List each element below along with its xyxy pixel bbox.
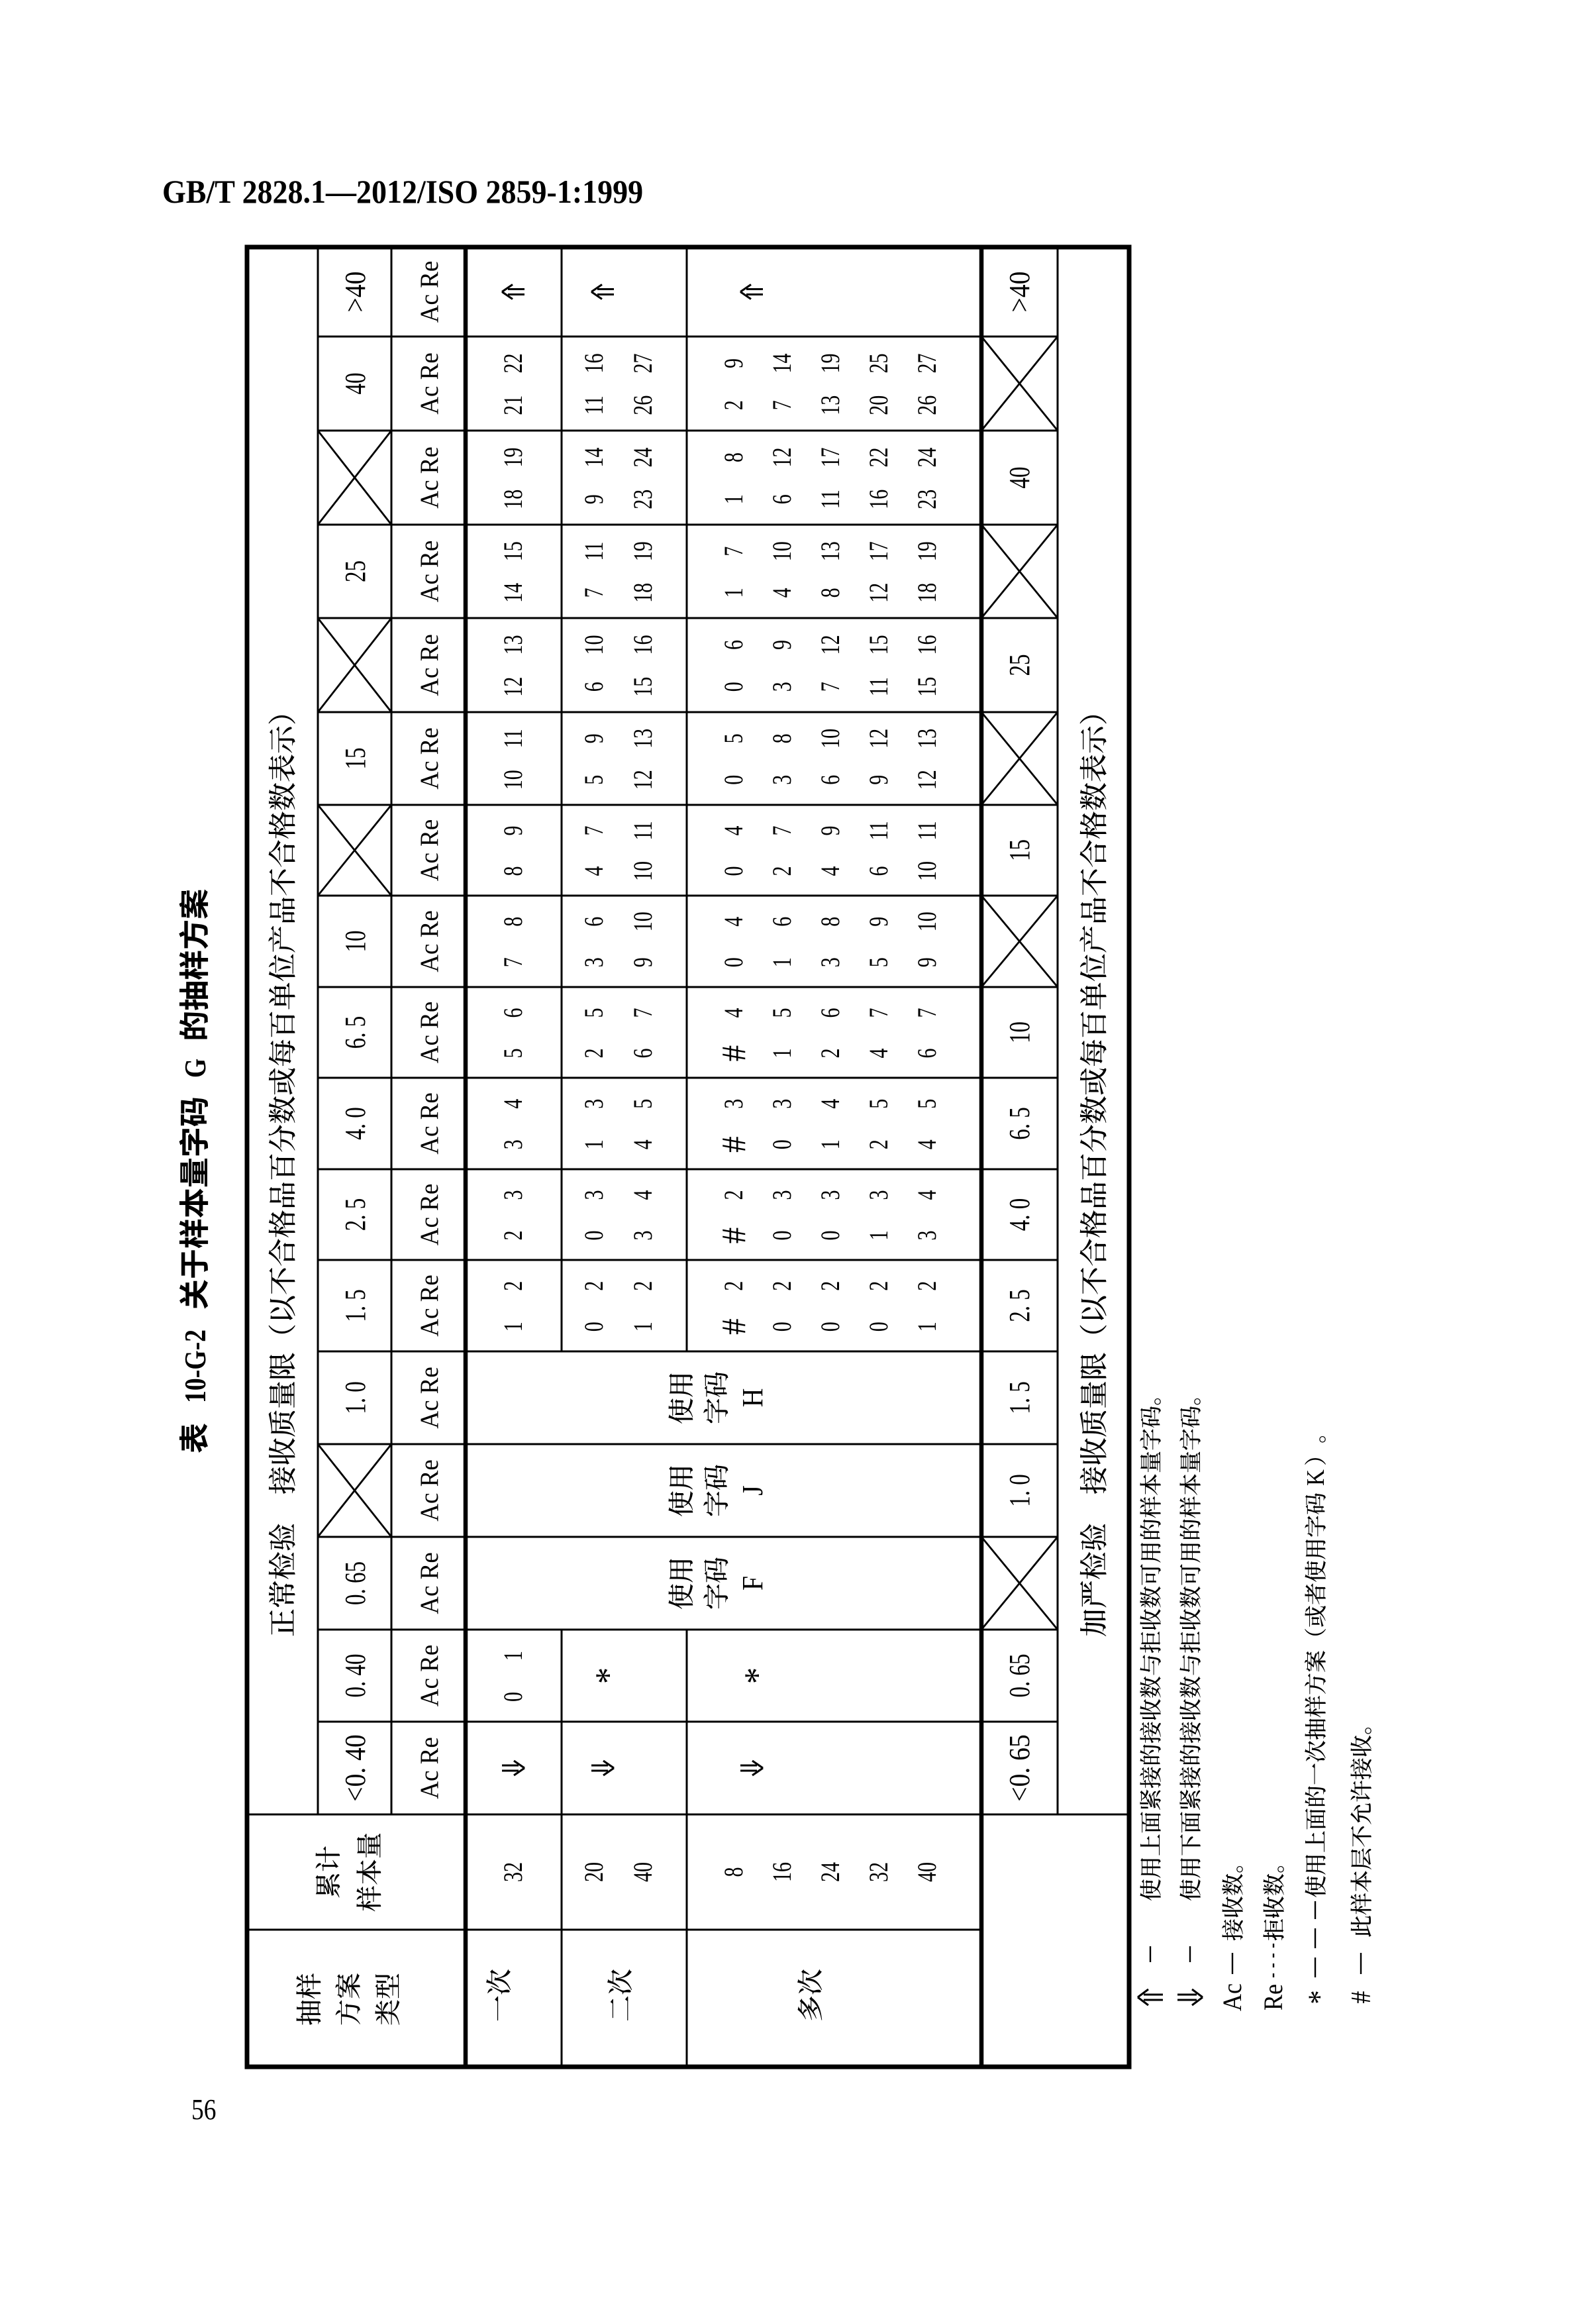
svg-text:#: # [715,1136,752,1153]
svg-text:9: 9 [498,826,528,836]
svg-text:2: 2 [767,1281,797,1291]
svg-text:11: 11 [815,490,845,509]
svg-text:12: 12 [912,770,942,790]
svg-text:15: 15 [864,635,893,655]
svg-text:25: 25 [1004,654,1036,676]
svg-text:Re: Re [1259,1984,1288,2011]
svg-text:32: 32 [498,1862,528,1882]
svg-text:8: 8 [815,588,845,598]
svg-text:11: 11 [864,821,893,841]
svg-text:19: 19 [498,448,528,468]
svg-text:7: 7 [498,957,528,967]
svg-text:0. 65: 0. 65 [340,1561,372,1605]
svg-text:18: 18 [628,583,658,603]
svg-text:6: 6 [767,917,797,927]
svg-text:17: 17 [815,448,845,468]
svg-text:24: 24 [628,447,658,467]
svg-text:18: 18 [498,490,528,509]
svg-text:3: 3 [815,957,845,967]
svg-text:Ac Re: Ac Re [415,261,444,323]
svg-text:11: 11 [579,542,609,561]
svg-text:2: 2 [719,1190,748,1200]
svg-text:1: 1 [719,494,748,504]
svg-text:13: 13 [628,729,658,749]
svg-text:F: F [737,1576,769,1591]
svg-text:12: 12 [815,635,845,655]
svg-text:0: 0 [767,1231,797,1241]
svg-text:1: 1 [767,957,797,967]
svg-text:5: 5 [719,733,748,743]
svg-text:13: 13 [815,395,845,415]
svg-text:6. 5: 6. 5 [1004,1107,1036,1139]
svg-text:0: 0 [767,1322,797,1332]
svg-text:2: 2 [498,1231,528,1241]
svg-text:9: 9 [719,358,748,368]
svg-text:19: 19 [628,541,658,561]
svg-text:#: # [715,1227,752,1244]
svg-text:10: 10 [912,861,942,881]
svg-text:4: 4 [628,1139,658,1149]
svg-text:5: 5 [864,1099,893,1109]
svg-text:16: 16 [864,490,893,509]
svg-text:>40: >40 [340,272,372,313]
svg-text:10: 10 [628,861,658,881]
svg-text:4: 4 [719,825,748,835]
svg-text:0: 0 [719,957,748,967]
svg-text:<0. 40: <0. 40 [340,1734,372,1802]
svg-text:2. 5: 2. 5 [340,1198,372,1231]
svg-text:*: * [587,1667,628,1684]
svg-text:3: 3 [912,1231,942,1241]
svg-text:Ac Re: Ac Re [415,1367,444,1429]
svg-text:40: 40 [1004,467,1036,489]
svg-text:2: 2 [767,866,797,876]
svg-text:5: 5 [579,1008,609,1018]
svg-text:6: 6 [579,682,609,692]
svg-text:4: 4 [912,1190,942,1200]
svg-text:9: 9 [579,494,609,504]
svg-text:0: 0 [719,775,748,785]
svg-text:10: 10 [767,541,797,561]
svg-text:25: 25 [340,560,372,582]
svg-text:9: 9 [864,775,893,785]
svg-text:3: 3 [767,775,797,785]
svg-text:Ac Re: Ac Re [415,1092,444,1155]
svg-text:2: 2 [815,1281,845,1291]
svg-text:19: 19 [815,354,845,374]
svg-text:K: K [1301,1469,1329,1486]
svg-text:4: 4 [767,588,797,598]
svg-text:23: 23 [628,490,658,509]
svg-text:4. 0: 4. 0 [340,1107,372,1139]
svg-text:4: 4 [912,1139,942,1149]
svg-text:40: 40 [628,1862,658,1882]
svg-text:Ac Re: Ac Re [415,727,444,790]
svg-text:Ac Re: Ac Re [415,1552,444,1614]
svg-text:12: 12 [628,770,658,790]
svg-text:2. 5: 2. 5 [1004,1289,1036,1322]
svg-text:16: 16 [579,354,609,374]
svg-text:11: 11 [498,729,528,748]
svg-text:2: 2 [815,1049,845,1059]
svg-text:7: 7 [579,826,609,836]
svg-text:5: 5 [864,957,893,967]
svg-text:<0. 65: <0. 65 [1004,1734,1036,1802]
svg-text:6: 6 [579,917,609,927]
svg-text:20: 20 [579,1862,609,1882]
svg-text:10: 10 [579,635,609,655]
svg-text:14: 14 [579,447,609,467]
svg-text:19: 19 [912,541,942,561]
svg-text:0: 0 [767,1139,797,1149]
svg-text:Ac Re: Ac Re [415,819,444,882]
svg-text:0: 0 [498,1692,528,1702]
svg-text:2: 2 [912,1281,942,1291]
svg-text:Ac: Ac [1218,1983,1247,2011]
svg-text:0: 0 [815,1231,845,1241]
svg-text:1. 5: 1. 5 [1004,1381,1036,1414]
svg-text:1: 1 [767,1049,797,1059]
svg-text:2: 2 [864,1281,893,1291]
svg-text:0: 0 [719,866,748,876]
svg-text:16: 16 [767,1862,797,1882]
svg-text:26: 26 [912,395,942,415]
svg-text:Ac Re: Ac Re [415,1737,444,1799]
svg-text:15: 15 [912,677,942,697]
svg-text:15: 15 [628,677,658,697]
svg-text:7: 7 [719,547,748,556]
svg-text:Ac Re: Ac Re [415,1184,444,1246]
svg-text:10: 10 [498,770,528,790]
svg-text:1. 0: 1. 0 [340,1381,372,1414]
svg-text:9: 9 [579,733,609,743]
svg-text:4: 4 [719,1008,748,1018]
svg-text:0. 65: 0. 65 [1004,1654,1036,1698]
svg-text:1: 1 [628,1322,658,1332]
svg-text:8: 8 [498,917,528,927]
svg-text:Ac Re: Ac Re [415,1275,444,1337]
svg-text:2: 2 [719,400,748,410]
svg-text:3: 3 [864,1190,893,1200]
svg-text:6. 5: 6. 5 [340,1016,372,1049]
svg-text:13: 13 [912,729,942,749]
svg-text:12: 12 [498,677,528,697]
svg-text:0: 0 [579,1231,609,1241]
svg-text:0: 0 [719,682,748,692]
svg-text:3: 3 [579,957,609,967]
svg-text:32: 32 [864,1862,893,1882]
svg-text:18: 18 [912,583,942,603]
svg-text:9: 9 [767,640,797,650]
svg-text:20: 20 [864,395,893,415]
svg-text:3: 3 [815,1190,845,1200]
svg-text:Ac Re: Ac Re [415,1645,444,1707]
svg-text:Ac Re: Ac Re [415,541,444,603]
svg-text:9: 9 [628,957,658,967]
svg-text:24: 24 [815,1862,845,1882]
svg-text:7: 7 [767,400,797,410]
svg-text:4: 4 [719,917,748,927]
svg-text:0: 0 [815,1322,845,1332]
svg-text:1: 1 [498,1651,528,1661]
svg-text:Ac Re: Ac Re [415,352,444,415]
svg-text:1: 1 [815,1139,845,1149]
svg-text:7: 7 [864,1008,893,1018]
svg-text:4: 4 [579,866,609,876]
svg-text:1: 1 [912,1322,942,1332]
svg-text:16: 16 [628,635,658,655]
svg-text:GB/T 2828.1—2012/ISO 2859-1:19: GB/T 2828.1—2012/ISO 2859-1:1999 [162,174,643,210]
svg-text:3: 3 [719,1099,748,1109]
svg-text:Ac Re: Ac Re [415,634,444,696]
svg-text:16: 16 [912,635,942,655]
svg-text:2: 2 [579,1049,609,1059]
svg-text:2: 2 [719,1281,748,1291]
svg-text:10: 10 [815,729,845,749]
svg-text:14: 14 [767,353,797,373]
svg-text:9: 9 [912,957,942,967]
svg-text:6: 6 [628,1049,658,1059]
svg-text:2: 2 [628,1281,658,1291]
svg-text:0: 0 [864,1322,893,1332]
svg-text:*: * [736,1667,777,1684]
svg-text:3: 3 [498,1190,528,1200]
svg-text:6: 6 [815,775,845,785]
svg-text:25: 25 [864,354,893,374]
svg-text:#: # [715,1318,752,1335]
svg-text:15: 15 [1004,839,1036,861]
svg-text:11: 11 [912,821,942,841]
svg-text:10: 10 [340,931,372,953]
svg-text:7: 7 [912,1008,942,1018]
svg-text:0: 0 [579,1322,609,1332]
svg-text:8: 8 [498,866,528,876]
svg-text:27: 27 [912,354,942,374]
svg-text:11: 11 [579,395,609,415]
svg-text:7: 7 [628,1008,658,1018]
svg-text:26: 26 [628,395,658,415]
svg-text:3: 3 [767,682,797,692]
svg-text:Ac Re: Ac Re [415,910,444,972]
svg-text:3: 3 [579,1099,609,1109]
svg-text:10: 10 [628,912,658,931]
svg-text:*: * [1301,1990,1337,2005]
svg-text:1: 1 [498,1322,528,1332]
svg-text:12: 12 [864,583,893,603]
svg-text:6: 6 [815,1008,845,1018]
svg-text:9: 9 [864,917,893,927]
svg-text:22: 22 [498,354,528,374]
svg-text:2: 2 [498,1281,528,1291]
svg-text:6: 6 [767,494,797,504]
svg-text:9: 9 [815,826,845,836]
svg-text:8: 8 [719,1867,748,1877]
svg-text:8: 8 [767,733,797,743]
svg-text:1. 0: 1. 0 [1004,1474,1036,1506]
svg-text:5: 5 [912,1099,942,1109]
svg-text:56: 56 [191,2093,216,2125]
svg-text:10: 10 [1004,1021,1036,1043]
svg-text:1: 1 [579,1139,609,1149]
svg-text:G: G [179,1059,213,1078]
svg-text:3: 3 [498,1139,528,1149]
svg-text:5: 5 [498,1049,528,1059]
svg-text:Ac Re: Ac Re [415,1002,444,1064]
svg-text:1. 5: 1. 5 [340,1289,372,1322]
svg-text:4. 0: 4. 0 [1004,1198,1036,1231]
svg-text:15: 15 [498,541,528,561]
svg-text:4: 4 [498,1099,528,1109]
svg-text:3: 3 [767,1099,797,1109]
svg-text:4: 4 [864,1048,893,1058]
svg-text:17: 17 [864,541,893,561]
svg-text:12: 12 [864,729,893,749]
svg-text:6: 6 [864,866,893,876]
svg-text:Ac Re: Ac Re [415,446,444,509]
svg-text:40: 40 [912,1862,942,1882]
svg-text:2: 2 [864,1139,893,1149]
svg-text:27: 27 [628,354,658,374]
svg-text:1: 1 [864,1231,893,1241]
svg-text:3: 3 [579,1190,609,1200]
svg-text:24: 24 [912,447,942,467]
svg-text:4: 4 [815,866,845,876]
svg-text:8: 8 [719,452,748,462]
svg-text:3: 3 [767,1190,797,1200]
svg-text:2: 2 [579,1281,609,1291]
svg-text:8: 8 [815,917,845,927]
svg-text:J: J [737,1485,769,1495]
svg-text:>40: >40 [1004,272,1036,313]
svg-text:#: # [715,1045,752,1062]
svg-text:7: 7 [767,826,797,836]
svg-text:13: 13 [815,541,845,561]
svg-text:11: 11 [864,677,893,696]
svg-text:7: 7 [815,682,845,692]
svg-text:#: # [1345,1991,1376,2004]
svg-text:7: 7 [579,588,609,598]
svg-text:H: H [737,1388,769,1408]
svg-text:5: 5 [628,1099,658,1109]
svg-text:13: 13 [498,635,528,655]
svg-text:23: 23 [912,490,942,509]
svg-text:3: 3 [628,1231,658,1241]
svg-text:5: 5 [767,1008,797,1018]
svg-text:10-G-2: 10-G-2 [179,1330,213,1403]
svg-text:4: 4 [628,1190,658,1200]
svg-text:22: 22 [864,448,893,468]
svg-text:21: 21 [498,395,528,415]
svg-text:15: 15 [340,748,372,770]
svg-text:11: 11 [628,821,658,841]
svg-text:5: 5 [579,775,609,785]
svg-text:6: 6 [719,640,748,650]
svg-text:40: 40 [340,373,372,395]
svg-text:Ac Re: Ac Re [415,1459,444,1522]
svg-text:1: 1 [719,588,748,598]
svg-text:12: 12 [767,448,797,468]
svg-text:14: 14 [498,583,528,603]
svg-text:10: 10 [912,912,942,931]
svg-text:6: 6 [498,1008,528,1018]
svg-text:4: 4 [815,1099,845,1109]
svg-text:0. 40: 0. 40 [340,1654,372,1698]
svg-text:6: 6 [912,1049,942,1059]
